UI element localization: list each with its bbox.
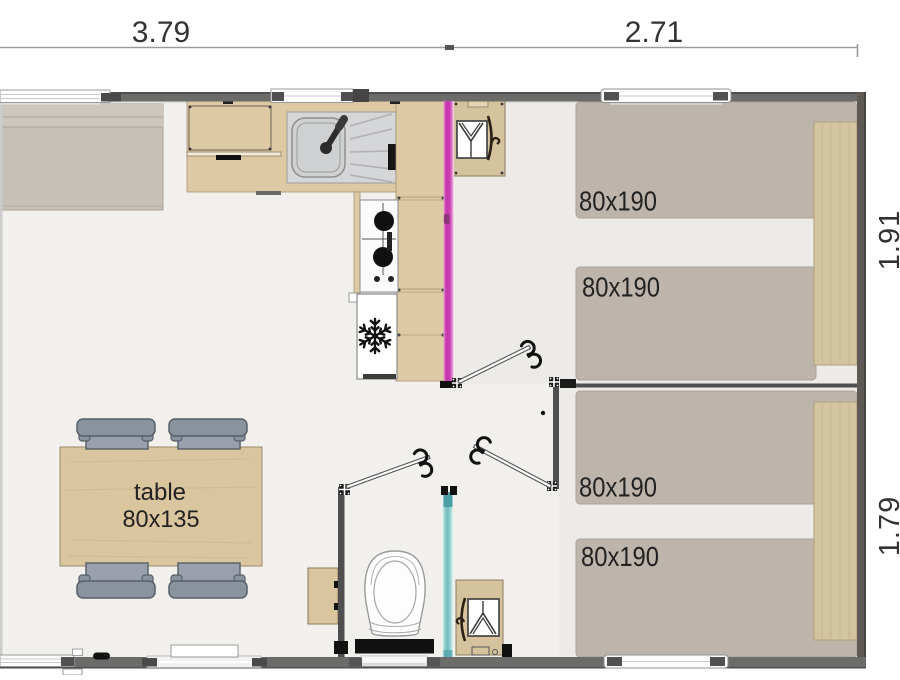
svg-text:80x190: 80x190 (582, 272, 660, 303)
svg-text:80x190: 80x190 (581, 541, 659, 572)
svg-text:3.79: 3.79 (132, 16, 190, 49)
svg-text:table: table (134, 479, 186, 506)
svg-text:80x190: 80x190 (579, 472, 657, 503)
svg-text:1.91: 1.91 (874, 210, 900, 270)
svg-text:2.71: 2.71 (625, 16, 683, 49)
svg-text:1.79: 1.79 (874, 496, 900, 556)
svg-text:80x190: 80x190 (579, 186, 657, 217)
svg-text:80x135: 80x135 (123, 506, 200, 533)
